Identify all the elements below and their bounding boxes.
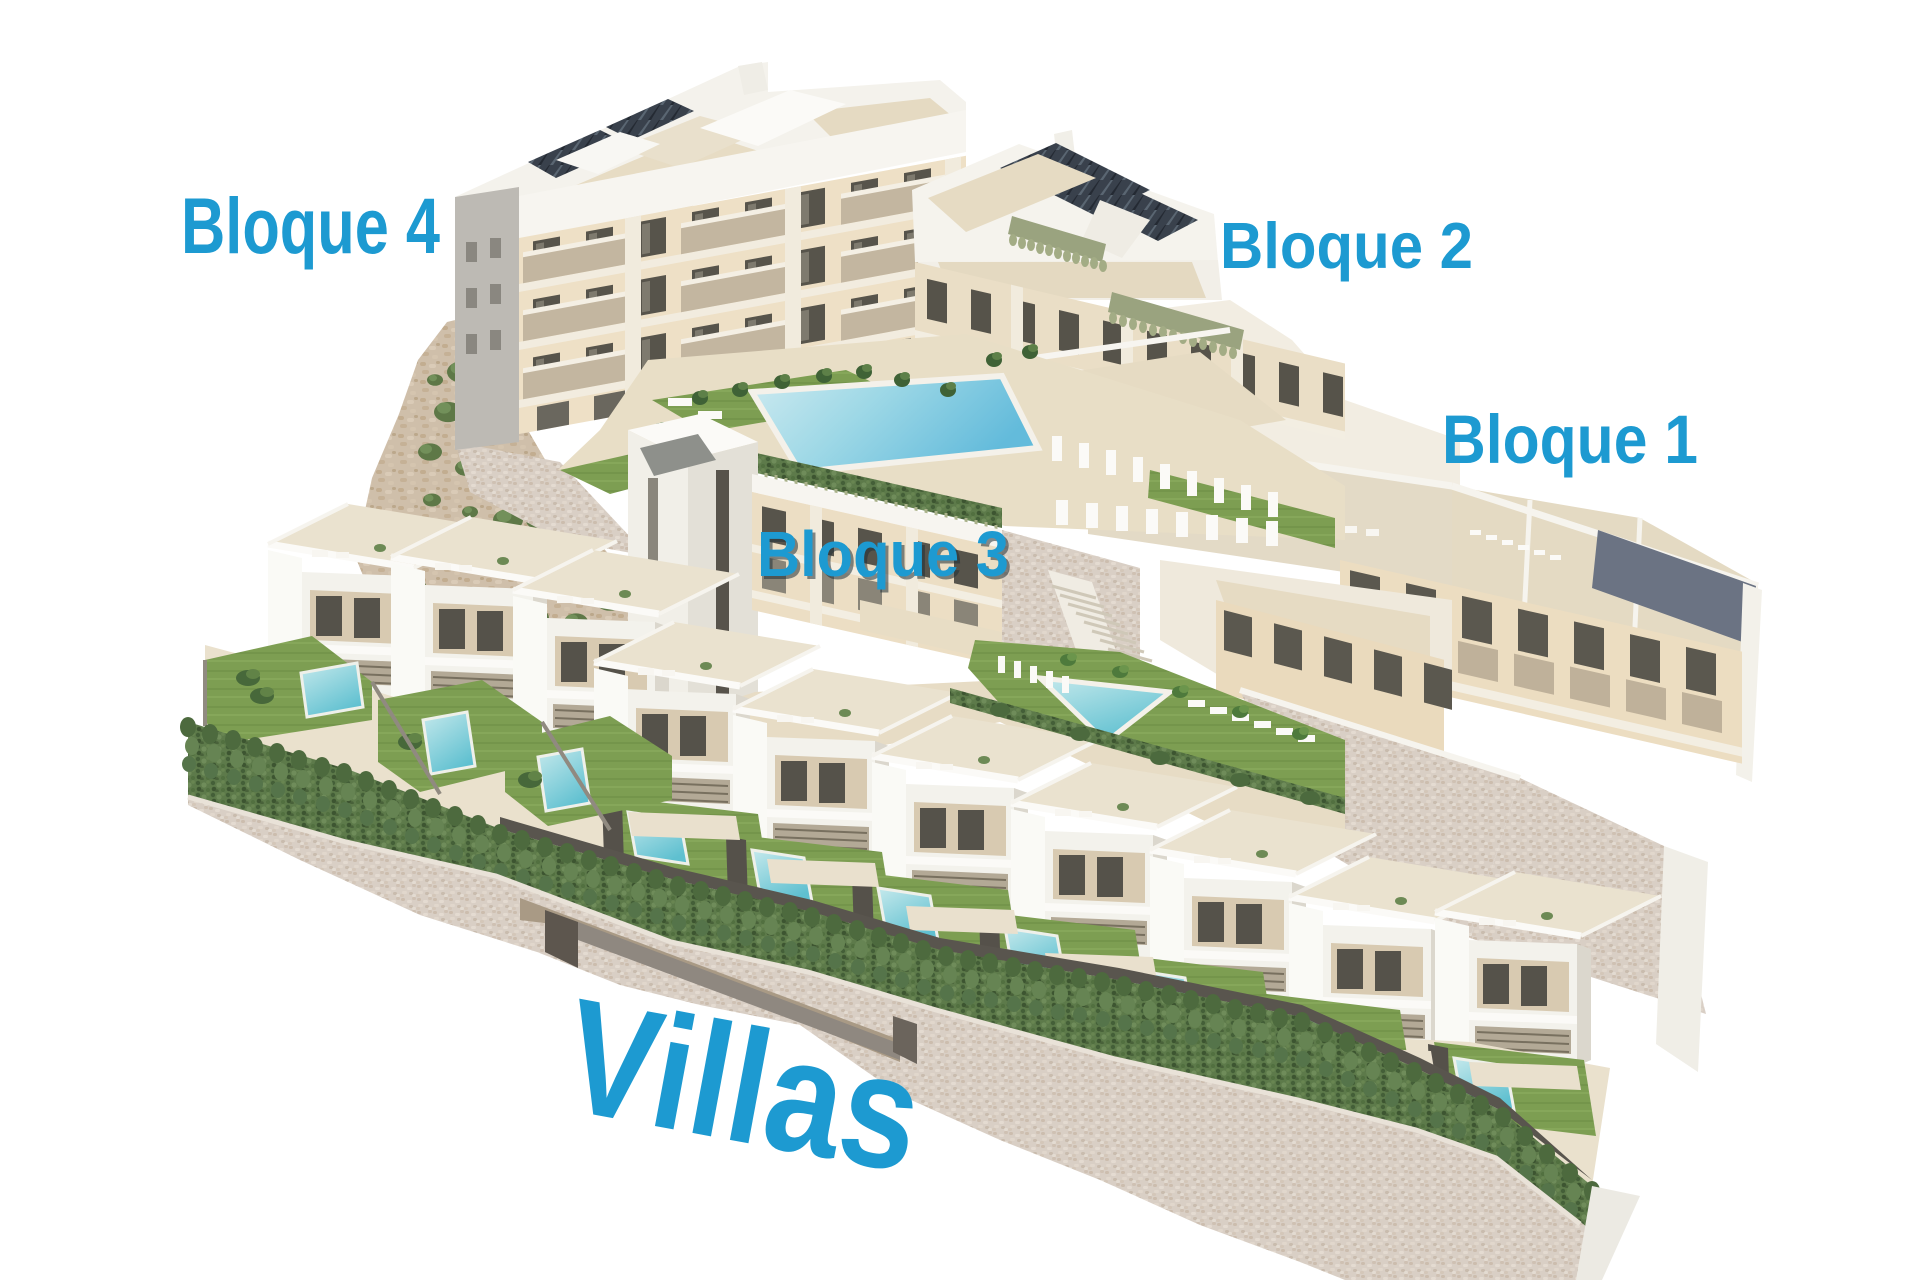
svg-text:Bloque 4: Bloque 4 — [181, 181, 440, 270]
svg-text:Bloque 2: Bloque 2 — [1220, 209, 1473, 282]
svg-text:Bloque 3: Bloque 3 — [757, 518, 1009, 590]
svg-text:Bloque 1: Bloque 1 — [1442, 401, 1698, 478]
